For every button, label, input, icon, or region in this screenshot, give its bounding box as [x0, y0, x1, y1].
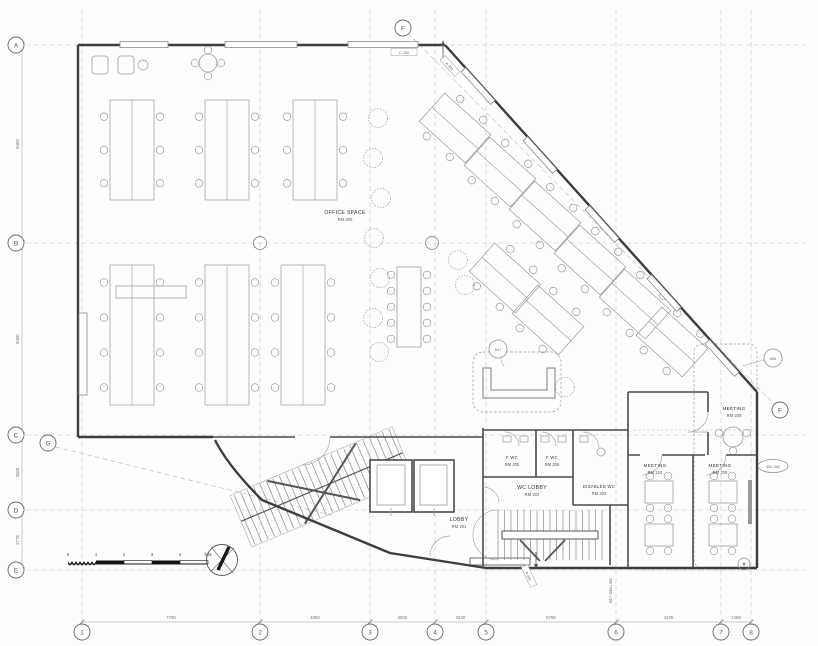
zone-tag: 606 [742, 349, 782, 367]
svg-text:F WC: F WC [546, 455, 558, 460]
level-tag: 352-352 [758, 460, 788, 473]
svg-text:1: 1 [80, 629, 84, 636]
tree [371, 269, 390, 288]
desk-cluster [548, 218, 633, 302]
tree [372, 189, 391, 208]
grid-bubble-A: A [8, 37, 24, 53]
wc-fixture [520, 436, 528, 442]
meeting-table [709, 515, 737, 555]
grid-bubble-G: G [40, 435, 56, 451]
svg-text:B: B [14, 240, 18, 247]
svg-text:C-100: C-100 [399, 51, 409, 55]
wall-tag: C-100 [391, 49, 417, 56]
svg-text:F: F [401, 25, 405, 32]
desk-cluster [413, 86, 498, 170]
room-label-meeting208: MEETING RM 208 [722, 406, 745, 418]
tree [556, 378, 575, 397]
room-label-meeting210: MEETING RM 210 [643, 463, 666, 475]
wall-board [748, 480, 752, 524]
svg-text:4: 4 [433, 629, 437, 636]
svg-text:KEY DIM LINE: KEY DIM LINE [609, 577, 613, 603]
dim-bottom-2: 4850 [310, 615, 320, 620]
svg-text:RM 201: RM 201 [452, 524, 467, 529]
scale-tick: 4 [179, 552, 182, 557]
grid-bubble-3: 3 [362, 624, 378, 640]
wc-fixture [597, 448, 605, 456]
dim-bottom-1: 7790 [166, 615, 176, 620]
sofa-tag: A07 [489, 340, 507, 367]
meeting-table [709, 472, 737, 512]
secondary-stair [473, 510, 602, 561]
dim-left-4: 2775 [15, 535, 20, 545]
dim-bottom-6: 4425 [664, 615, 674, 620]
svg-text:DISABLED WC: DISABLED WC [583, 484, 615, 489]
room-label-disabled-wc: DISABLED WC RM 203 [583, 484, 615, 496]
grid-bubble-5: 5 [478, 624, 494, 640]
desk-cluster [463, 236, 548, 320]
svg-text:RM 203: RM 203 [592, 491, 607, 496]
storage-bench [116, 286, 186, 298]
svg-text:RM 209: RM 209 [713, 470, 728, 475]
dim-left-1: 8400 [15, 139, 20, 149]
grid-bubble-2: 2 [252, 624, 268, 640]
grid-bubble-E: E [8, 562, 24, 578]
svg-text:RM 200: RM 200 [338, 217, 353, 222]
svg-text:2: 2 [258, 629, 262, 636]
bench [470, 558, 530, 565]
elevator-2 [414, 460, 454, 516]
svg-text:RM 205: RM 205 [505, 462, 520, 467]
dim-bottom-3: 2850 [398, 615, 408, 620]
desk-cluster [195, 265, 259, 405]
svg-text:F: F [778, 407, 782, 414]
scale-tick: 2 [123, 552, 126, 557]
grid-g-leader [56, 447, 335, 516]
grid-bubble-6: 6 [608, 624, 624, 640]
svg-text:5: 5 [484, 629, 488, 636]
scale-tick: 1 [95, 552, 98, 557]
scale-tick: 0 [67, 552, 70, 557]
svg-text:8: 8 [749, 629, 753, 636]
desk-cluster [593, 262, 678, 346]
grid-bubble-B: B [8, 235, 24, 251]
svg-text:LOBBY: LOBBY [450, 517, 469, 523]
tree [449, 251, 468, 270]
armchair [118, 56, 134, 74]
floor-plan-canvas: A-301 A-301 C-100 606 352-352 A07 OFFICE… [0, 0, 818, 646]
svg-text:7: 7 [719, 629, 723, 636]
desk-cluster [506, 278, 591, 362]
long-meeting-table [387, 267, 431, 347]
round-table [191, 46, 225, 80]
sofa [483, 368, 555, 398]
svg-text:RM 202: RM 202 [525, 492, 540, 497]
grid-bubble-1: 1 [74, 624, 90, 640]
svg-text:OFFICE SPACE: OFFICE SPACE [324, 210, 366, 216]
dim-left-2: 8400 [15, 334, 20, 344]
dim-bottom-5: 5790 [546, 615, 556, 620]
room-label-office: OFFICE SPACE RM 200 [324, 210, 366, 222]
svg-text:D: D [14, 507, 19, 514]
grid-bubbles: ABCDE12345678FFG [8, 20, 788, 640]
elevator-1 [370, 460, 412, 516]
armchair [92, 56, 108, 74]
scale-bar: 012345 M [67, 552, 212, 565]
grid-bubble-7: 7 [713, 624, 729, 640]
tree [369, 109, 388, 128]
desk-cluster [630, 300, 715, 384]
svg-text:352-352: 352-352 [766, 465, 780, 469]
desk-cluster [283, 100, 347, 200]
tree [456, 276, 475, 295]
svg-text:F WC: F WC [506, 455, 518, 460]
detail-tag-dot [743, 563, 746, 566]
wc-fixture [558, 436, 566, 442]
north-arrow-icon [207, 545, 238, 576]
room-label-wc-lobby: WC LOBBY RM 202 [517, 485, 547, 497]
grid-bubble-D: D [8, 502, 24, 518]
side-table [138, 60, 148, 70]
desk-cluster [100, 100, 164, 200]
svg-text:3: 3 [368, 629, 372, 636]
wc-fixture [541, 436, 549, 442]
room-label-fwc1: F WC RM 205 [505, 455, 520, 467]
scale-tick: 3 [151, 552, 154, 557]
tree [364, 309, 383, 328]
windows [79, 42, 739, 396]
svg-text:6: 6 [614, 629, 618, 636]
grid-bubble-F-right: F [772, 402, 788, 418]
meeting-table [645, 515, 673, 555]
desk-cluster [503, 174, 588, 258]
room-label-lobby: LOBBY RM 201 [450, 517, 469, 529]
meeting-table [645, 472, 673, 512]
tree [370, 343, 389, 362]
key-dim-note: KEY DIM LINE [609, 577, 613, 603]
round-meeting-table [715, 427, 751, 455]
svg-text:C: C [14, 432, 19, 439]
grid-bubble-F-top: F [395, 20, 411, 36]
tree [364, 149, 383, 168]
wc-fixture [503, 436, 511, 442]
svg-text:A: A [14, 42, 19, 49]
dimension-strings: 7790485028502340579044251388840084003000… [15, 43, 754, 625]
floor-plan-svg: A-301 A-301 C-100 606 352-352 A07 OFFICE… [0, 0, 818, 646]
desk-cluster [271, 265, 335, 405]
svg-text:WC LOBBY: WC LOBBY [517, 485, 547, 491]
grid-bubble-C: C [8, 427, 24, 443]
svg-text:RM 208: RM 208 [727, 413, 742, 418]
interior-walls [213, 392, 757, 568]
tree [365, 229, 384, 248]
svg-text:MEETING: MEETING [722, 406, 745, 411]
svg-text:G: G [45, 440, 50, 447]
dim-left-3: 3000 [15, 467, 20, 477]
grid-bubble-8: 8 [743, 624, 759, 640]
svg-text:E: E [14, 567, 19, 574]
svg-text:606: 606 [770, 357, 776, 361]
wc-fixture [580, 436, 588, 442]
svg-text:MEETING: MEETING [708, 463, 731, 468]
dim-bottom-7: 1388 [731, 615, 741, 620]
dim-bottom-4: 2340 [456, 615, 466, 620]
grid-bubble-4: 4 [427, 624, 443, 640]
desk-cluster [195, 100, 259, 200]
svg-text:RM 210: RM 210 [648, 470, 663, 475]
grid-lines [10, 10, 805, 625]
svg-text:RM 206: RM 206 [545, 462, 560, 467]
svg-text:MEETING: MEETING [643, 463, 666, 468]
svg-text:A07: A07 [495, 348, 502, 352]
room-label-fwc2: F WC RM 206 [545, 455, 560, 467]
